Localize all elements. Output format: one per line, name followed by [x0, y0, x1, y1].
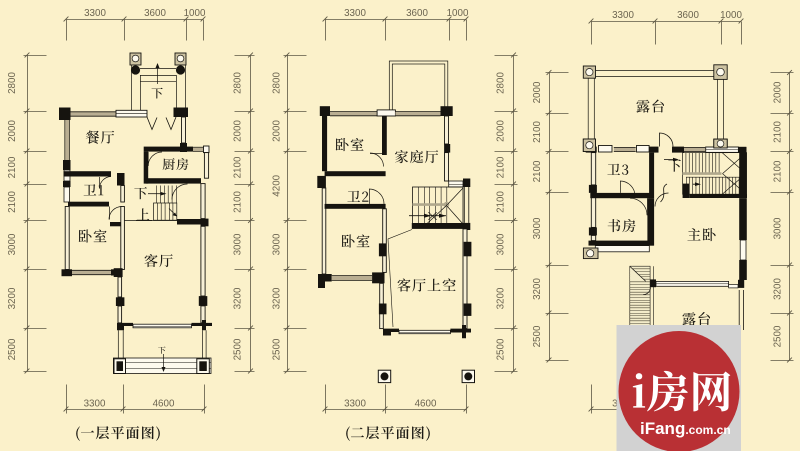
- svg-text:3000: 3000: [233, 233, 244, 255]
- svg-text:3600: 3600: [406, 8, 428, 19]
- svg-text:2100: 2100: [7, 156, 18, 178]
- svg-text:3200: 3200: [496, 287, 507, 309]
- svg-text:3300: 3300: [84, 8, 106, 19]
- svg-text:3200: 3200: [773, 278, 784, 300]
- svg-text:1000: 1000: [184, 8, 206, 19]
- svg-text:2000: 2000: [272, 120, 283, 142]
- svg-text:3300: 3300: [344, 8, 366, 19]
- svg-text:3300: 3300: [84, 399, 106, 410]
- svg-text:2500: 2500: [272, 338, 283, 360]
- svg-text:3600: 3600: [677, 10, 699, 21]
- svg-text:2500: 2500: [496, 338, 507, 360]
- svg-text:2100: 2100: [496, 156, 507, 178]
- svg-text:3000: 3000: [532, 217, 543, 239]
- svg-text:4600: 4600: [415, 399, 437, 410]
- svg-text:2800: 2800: [272, 72, 283, 94]
- svg-text:4200: 4200: [272, 174, 283, 196]
- svg-text:3600: 3600: [144, 8, 166, 19]
- svg-text:1000: 1000: [720, 10, 742, 21]
- svg-text:3000: 3000: [272, 233, 283, 255]
- svg-text:3200: 3200: [233, 287, 244, 309]
- svg-text:3000: 3000: [7, 233, 18, 255]
- svg-text:3300: 3300: [344, 399, 366, 410]
- svg-text:2100: 2100: [773, 160, 784, 182]
- svg-text:2800: 2800: [496, 72, 507, 94]
- svg-text:2100: 2100: [773, 121, 784, 143]
- svg-text:2500: 2500: [233, 338, 244, 360]
- svg-text:2100: 2100: [7, 191, 18, 213]
- svg-text:2100: 2100: [496, 191, 507, 213]
- svg-text:3000: 3000: [496, 233, 507, 255]
- svg-text:3000: 3000: [773, 217, 784, 239]
- svg-text:2100: 2100: [532, 160, 543, 182]
- svg-text:3200: 3200: [532, 278, 543, 300]
- svg-text:2100: 2100: [532, 121, 543, 143]
- svg-text:3200: 3200: [7, 287, 18, 309]
- svg-text:2800: 2800: [233, 72, 244, 94]
- svg-text:2000: 2000: [496, 120, 507, 142]
- svg-text:2000: 2000: [532, 81, 543, 103]
- svg-text:3300: 3300: [612, 10, 634, 21]
- svg-text:1000: 1000: [447, 8, 469, 19]
- svg-text:2500: 2500: [532, 325, 543, 347]
- svg-text:2000: 2000: [233, 120, 244, 142]
- svg-text:2100: 2100: [233, 156, 244, 178]
- svg-text:3200: 3200: [272, 287, 283, 309]
- svg-text:2800: 2800: [7, 72, 18, 94]
- svg-text:4600: 4600: [153, 399, 175, 410]
- svg-text:2000: 2000: [7, 120, 18, 142]
- svg-text:2500: 2500: [773, 325, 784, 347]
- svg-text:2000: 2000: [773, 81, 784, 103]
- svg-text:2100: 2100: [233, 191, 244, 213]
- svg-text:2500: 2500: [7, 338, 18, 360]
